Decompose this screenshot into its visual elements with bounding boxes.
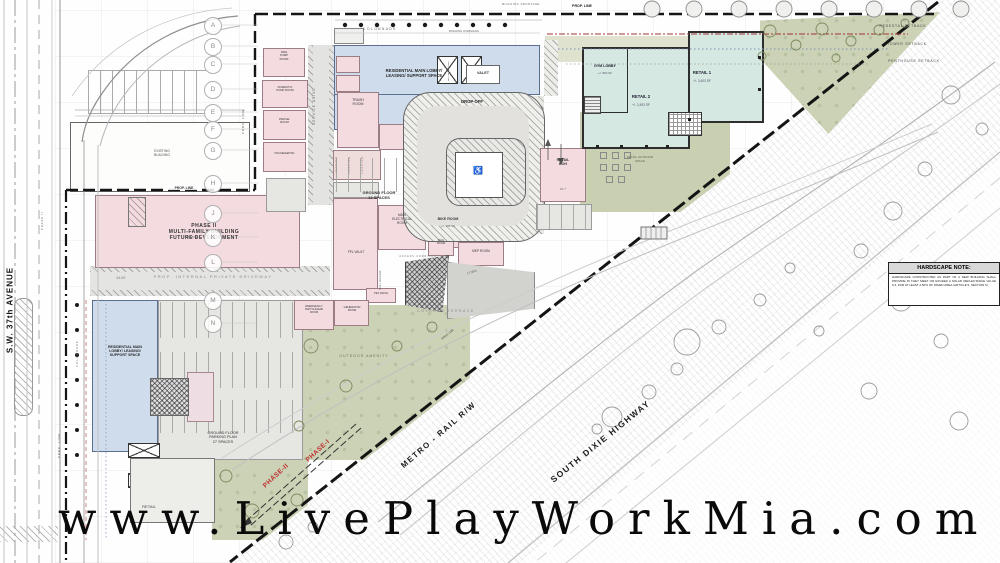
grid-bubble-B: B bbox=[204, 38, 222, 56]
trash-room-label: TRASH ROOM bbox=[341, 98, 375, 106]
accessible-icon: ♿ bbox=[468, 166, 488, 175]
road-label-sw37: S.W. 37th AVENUE bbox=[6, 263, 18, 358]
res-elev-lobby-label: RES. ELEV. LOBBY bbox=[448, 57, 456, 84]
grid-bubble-F: F bbox=[204, 121, 222, 139]
retail-boh-dim: 28.7' bbox=[541, 188, 585, 192]
driveway-width-dim: 24.00' bbox=[108, 276, 134, 280]
grid-bubble-L: L bbox=[204, 254, 222, 272]
hardscape-note-title: HARDSCAPE NOTE: bbox=[889, 263, 999, 274]
bag-room-label: BAG ROOM bbox=[429, 239, 453, 245]
grid-bubble-G: G bbox=[204, 142, 222, 160]
grid-bubble-A: A bbox=[204, 17, 222, 35]
tower-setback-label: TOWER SETBACK bbox=[878, 42, 936, 46]
prop-line-mid-label: PROP. LINE bbox=[242, 103, 251, 139]
pedestal-setback-label: PEDESTAL SETBACK bbox=[870, 24, 936, 28]
valet-label: VALET bbox=[466, 71, 500, 75]
retail-columns bbox=[596, 56, 761, 148]
penthouse-setback-label: PENTHOUSE SETBACK bbox=[879, 59, 949, 63]
access-corridor-label: ACCESS CORRIDOR bbox=[393, 255, 443, 258]
loading-stall-label-1: LOADING bbox=[336, 151, 345, 179]
grid-bubble-K: K bbox=[204, 229, 222, 247]
phase2-arrow-label: PHASE II bbox=[41, 206, 50, 236]
grid-bubble-M: M bbox=[204, 292, 222, 310]
fire-pump-label: FIRE PUMP ROOM bbox=[265, 51, 303, 61]
grid-bubble-J: J bbox=[204, 205, 222, 223]
retail-outdoor-label: RETAIL OUTDOOR SPACE bbox=[616, 156, 664, 163]
internal-driveway-label: PROP. INTERNAL PRIVATE DRIVEWAY bbox=[138, 275, 288, 280]
retail2-label: RETAIL 2 bbox=[612, 95, 670, 100]
grid-bubble-D: D bbox=[204, 81, 222, 99]
generator-label: GENERATOR ROOM bbox=[334, 306, 370, 312]
colonnade-left-label: COLONNADE bbox=[76, 332, 85, 376]
parking27-label: GROUND FLOOR PARKING PLAN 27 SPACES bbox=[195, 431, 251, 444]
prop-line-bottom-label: PROP. LINE bbox=[166, 186, 202, 190]
covered-terrace-label: COVERED TERRACE bbox=[404, 309, 488, 313]
prop-line-left-label: PROP. LINE bbox=[58, 428, 67, 462]
outdoor-amenity-label: OUTDOOR AMENITY bbox=[324, 354, 404, 358]
domestic-pump-label: DOMESTIC PUMP ROOM bbox=[263, 86, 307, 93]
loading-stall-label-2: LOADING bbox=[349, 151, 358, 179]
service-drive-label: SERVICE DRIVE bbox=[313, 72, 323, 140]
grid-bubble-E: E bbox=[204, 104, 222, 122]
main-electrical-label: MAIN ELECTRICAL ROOM bbox=[380, 214, 424, 225]
bike-room-area: +/- 436 SF bbox=[429, 225, 467, 229]
bike-room-label: BIKE ROOM bbox=[429, 217, 467, 221]
retail-boh-label: RETAIL BOH bbox=[541, 158, 585, 166]
plan-linework bbox=[0, 0, 1000, 563]
ground12-label: GROUND FLOOR 12 SPACES bbox=[351, 191, 407, 200]
prop-line-top-label: PROP. LINE bbox=[563, 4, 601, 8]
building-overhang-label: BUILDING OVERHANG bbox=[441, 30, 487, 33]
service-label: SERVICE bbox=[177, 236, 205, 240]
retail2-area: +/- 2,493 SF bbox=[612, 104, 670, 108]
grid-bubble-H: H bbox=[204, 175, 222, 193]
housekeeping-label: HOUSEKEEPING bbox=[264, 153, 305, 156]
grid-bubble-N: N bbox=[204, 315, 222, 333]
emergency-switchgear-label: EMERGENCY SWITCHGEAR ROOM bbox=[294, 305, 334, 315]
colonnade-top-label: COLONNADE bbox=[358, 28, 402, 32]
parcel-room-label: PARCEL ROOM bbox=[265, 118, 304, 125]
mep-room-label: MEP ROOM bbox=[459, 250, 503, 254]
loading-stall-label-3: LOADING bbox=[362, 151, 371, 179]
retail1-area: +/- 3,403 SF bbox=[674, 80, 730, 84]
gym-lobby-area: +/- 952 SF bbox=[583, 72, 627, 76]
dropoff-label: DROP-OFF bbox=[447, 100, 497, 105]
hardscape-note-box: HARDSCAPE NOTE: HARDSCAPE CONSTRUCTED AS… bbox=[888, 262, 1000, 306]
fpl-vault-label: FPL VAULT bbox=[335, 251, 377, 255]
pet-wash-label: PET WASH bbox=[364, 292, 398, 295]
res-lobby-top-label: RESIDENTIAL MAIN LOBBY/ LEASING/ SUPPORT… bbox=[377, 69, 451, 79]
building-frontage-label: BUILDING FRONTAGE bbox=[494, 3, 548, 6]
site-plan-sheet: ♿ HARDSCAPE NOTE: HARDSCAPE CONSTRUCTED … bbox=[0, 0, 1000, 563]
grid-bubble-C: C bbox=[204, 56, 222, 74]
retail1-label: RETAIL 1 bbox=[674, 71, 730, 76]
hardscape-note-body: HARDSCAPE CONSTRUCTED AS PART OF A NEW B… bbox=[889, 274, 999, 290]
gym-lobby-label: GYM LOBBY bbox=[583, 64, 627, 68]
watermark-text: www.LivePlayWorkMia.com bbox=[58, 492, 990, 545]
existing-building-label: EXISTING BUILDING bbox=[139, 149, 185, 157]
res-lobby-left-label: RESIDENTIAL MAIN LOBBY/ LEASING/ SUPPORT… bbox=[94, 345, 156, 358]
